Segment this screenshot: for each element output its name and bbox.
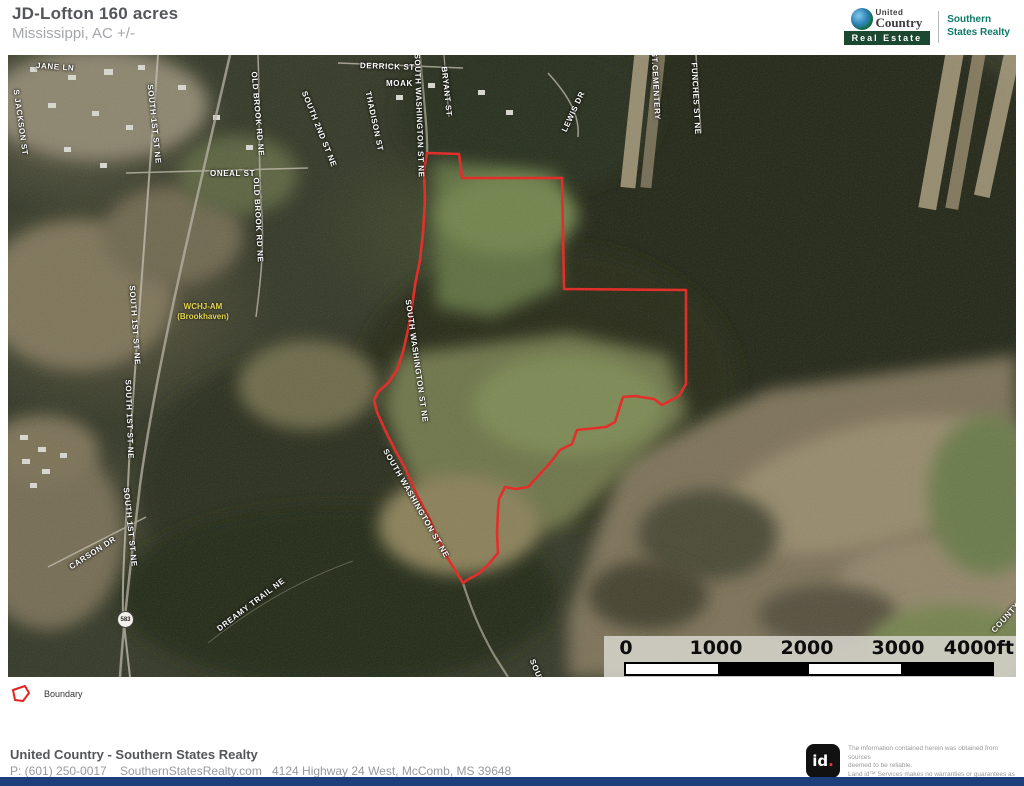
street-label: ONEAL ST <box>210 169 255 178</box>
scale-seg <box>626 664 718 674</box>
partner-line1: Southern <box>947 14 1010 27</box>
page-subtitle: Mississippi, AC +/- <box>12 25 135 42</box>
land-id-text: id <box>812 752 828 770</box>
scale-seg <box>901 664 993 674</box>
scale-tick: 3000 <box>872 637 925 659</box>
legend: Boundary <box>10 684 83 704</box>
page-title: JD-Lofton 160 acres <box>12 4 178 24</box>
scale-tick: 1000 <box>690 637 743 659</box>
disclaimer-line: The information contained herein was obt… <box>848 745 1016 762</box>
footer-phone: P: (601) 250-0017 <box>10 764 107 778</box>
globe-icon <box>851 8 873 30</box>
aerial-map: JANE LN S JACKSON ST SOUTH 1ST ST NE OLD… <box>8 55 1016 677</box>
logo-real-estate-banner: Real Estate <box>844 31 931 45</box>
boundary-legend-icon <box>10 684 32 704</box>
property-map-flyer: JD-Lofton 160 acres Mississippi, AC +/- … <box>0 0 1024 786</box>
street-label: DERRICK ST <box>360 61 415 72</box>
highway-shield: 583 <box>117 611 134 628</box>
southern-states-realty-logo: Southern States Realty <box>947 14 1010 39</box>
scale-seg <box>718 664 810 674</box>
logo-country-text: Country <box>875 16 922 29</box>
footer-accent-bar <box>0 777 1024 786</box>
land-id-dot: . <box>828 752 834 770</box>
radio-station-label: WCHJ-AM (Brookhaven) <box>168 302 238 322</box>
poi-line2: (Brookhaven) <box>168 312 238 322</box>
scale-tick: 0 <box>619 637 632 659</box>
street-label: MOAK <box>386 79 413 88</box>
land-id-logo: id. <box>806 744 840 778</box>
poi-line1: WCHJ-AM <box>168 302 238 312</box>
scale-tick-end: 4000ft <box>944 637 1014 659</box>
brand-logos: United Country Real Estate Southern Stat… <box>844 8 1010 45</box>
footer-website: SouthernStatesRealty.com <box>120 764 262 778</box>
logo-divider <box>938 11 939 43</box>
disclaimer-line: deemed to be reliable. <box>848 762 1016 771</box>
united-country-logo: United Country Real Estate <box>844 8 931 45</box>
scale-bar: 0 1000 2000 3000 4000ft <box>604 636 1016 677</box>
scale-seg <box>809 664 901 674</box>
legend-boundary-label: Boundary <box>44 689 83 699</box>
scale-bar-segments <box>624 662 994 676</box>
partner-line2: States Realty <box>947 27 1010 40</box>
footer-address: 4124 Highway 24 West, McComb, MS 39648 <box>272 764 511 778</box>
footer-company: United Country - Southern States Realty <box>10 747 258 762</box>
scale-tick: 2000 <box>781 637 834 659</box>
